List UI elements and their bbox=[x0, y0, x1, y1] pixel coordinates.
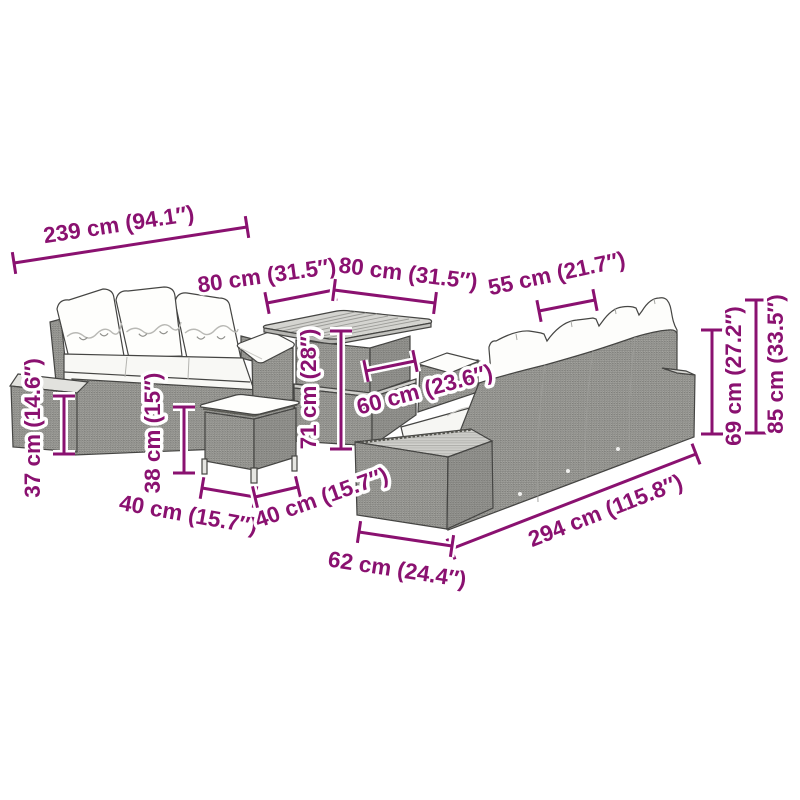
svg-text:69 cm (27.2″): 69 cm (27.2″) bbox=[721, 306, 746, 446]
svg-text:85 cm (33.5″): 85 cm (33.5″) bbox=[763, 294, 788, 434]
svg-text:37 cm (14.6″): 37 cm (14.6″) bbox=[20, 358, 45, 498]
svg-text:71 cm (28″): 71 cm (28″) bbox=[296, 329, 321, 450]
svg-text:38 cm (15″): 38 cm (15″) bbox=[140, 373, 165, 494]
